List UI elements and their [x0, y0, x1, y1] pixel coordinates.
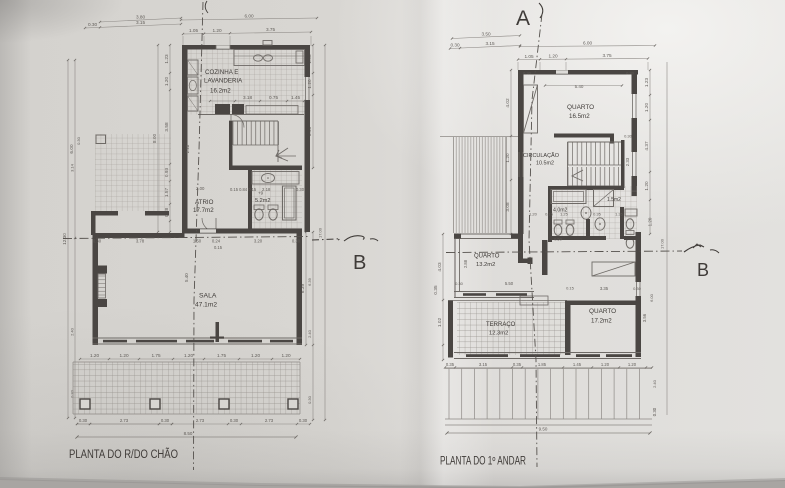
svg-text:4.02: 4.02	[505, 98, 510, 108]
svg-text:3.15: 3.15	[479, 362, 488, 367]
svg-text:CIRCULAÇÃO: CIRCULAÇÃO	[523, 152, 559, 159]
svg-text:0.15 0.84 0.15: 0.15 0.84 0.15	[230, 187, 257, 192]
svg-text:0.30: 0.30	[299, 418, 308, 423]
svg-text:6.00: 6.00	[244, 13, 254, 18]
svg-text:3.75: 3.75	[266, 27, 276, 32]
svg-text:2.73: 2.73	[196, 418, 205, 423]
svg-text:3.56: 3.56	[642, 313, 647, 322]
svg-text:1.05: 1.05	[524, 54, 534, 59]
svg-text:16.5m2: 16.5m2	[569, 113, 590, 120]
svg-text:17.00: 17.00	[318, 227, 323, 238]
svg-text:2.18: 2.18	[262, 187, 271, 192]
svg-text:3.35: 3.35	[600, 286, 609, 291]
svg-text:5.40: 5.40	[575, 84, 584, 89]
svg-text:0.30: 0.30	[93, 239, 102, 244]
svg-text:0.30: 0.30	[292, 239, 301, 244]
svg-text:17.2m2: 17.2m2	[591, 318, 612, 325]
svg-text:QUARTO: QUARTO	[567, 104, 594, 111]
svg-text:2.40: 2.40	[652, 379, 657, 388]
svg-text:SALA: SALA	[199, 293, 217, 300]
svg-text:3.15: 3.15	[136, 20, 146, 25]
svg-text:1.20: 1.20	[644, 103, 649, 113]
svg-text:4.37: 4.37	[644, 141, 649, 151]
svg-text:1.20: 1.20	[307, 79, 312, 89]
svg-text:47.1m2: 47.1m2	[195, 302, 217, 309]
svg-text:0.30: 0.30	[626, 71, 635, 76]
svg-text:0.75: 0.75	[269, 95, 279, 100]
svg-text:0.30: 0.30	[230, 418, 239, 423]
svg-text:4.03: 4.03	[437, 262, 442, 272]
svg-text:1.20: 1.20	[601, 362, 610, 367]
svg-text:2.33: 2.33	[625, 157, 630, 166]
svg-text:QUARTO: QUARTO	[589, 308, 616, 315]
svg-text:1.75: 1.75	[151, 353, 161, 358]
svg-text:6.39: 6.39	[307, 277, 312, 286]
svg-text:+9: +9	[258, 191, 264, 196]
svg-text:0.24: 0.24	[212, 239, 221, 244]
svg-text:3.80: 3.80	[136, 14, 146, 19]
svg-text:0.35: 0.35	[446, 362, 455, 367]
svg-text:2.73: 2.73	[265, 418, 274, 423]
svg-text:6.00: 6.00	[583, 40, 593, 45]
svg-text:0.50: 0.50	[554, 237, 563, 242]
svg-text:0.30: 0.30	[624, 134, 633, 139]
svg-text:3.15: 3.15	[485, 41, 495, 46]
svg-text:1.25: 1.25	[560, 212, 569, 217]
svg-text:17.00: 17.00	[660, 238, 665, 249]
svg-text:1.20: 1.20	[281, 353, 291, 358]
svg-text:13.2m2: 13.2m2	[476, 262, 495, 268]
svg-text:1.50: 1.50	[193, 239, 202, 244]
svg-text:10.5m2: 10.5m2	[536, 161, 554, 167]
svg-text:0.30: 0.30	[296, 187, 305, 192]
svg-text:6.00: 6.00	[649, 293, 654, 302]
svg-text:0.30: 0.30	[79, 418, 88, 423]
svg-text:2.73: 2.73	[120, 418, 129, 423]
svg-text:2.40: 2.40	[70, 327, 75, 336]
svg-text:0.15: 0.15	[545, 212, 554, 217]
svg-text:0.30: 0.30	[523, 71, 532, 76]
svg-text:0.30: 0.30	[633, 286, 642, 291]
svg-text:1.20: 1.20	[164, 77, 169, 87]
svg-text:0.35: 0.35	[433, 285, 438, 295]
svg-text:B: B	[353, 252, 366, 274]
svg-text:2.88: 2.88	[463, 259, 468, 268]
svg-text:1.05: 1.05	[189, 28, 199, 33]
svg-text:1.5m2: 1.5m2	[607, 197, 621, 203]
svg-text:1.45: 1.45	[573, 362, 582, 367]
svg-text:1.20: 1.20	[505, 153, 510, 163]
svg-text:16.2m2: 16.2m2	[210, 88, 231, 95]
svg-text:1.20: 1.20	[119, 353, 129, 358]
svg-text:3.08: 3.08	[505, 202, 510, 212]
svg-text:1.20: 1.20	[184, 353, 194, 358]
svg-text:PLANTA DO 1º ANDAR: PLANTA DO 1º ANDAR	[440, 456, 526, 468]
svg-text:2.20: 2.20	[185, 144, 190, 153]
svg-text:3.50: 3.50	[481, 31, 491, 36]
svg-text:A: A	[516, 7, 530, 30]
svg-text:5.50: 5.50	[505, 281, 514, 286]
svg-text:1.20: 1.20	[548, 54, 558, 59]
svg-text:0.35: 0.35	[513, 362, 522, 367]
svg-text:COZINHA E: COZINHA E	[205, 69, 238, 76]
svg-text:TERRAÇO: TERRAÇO	[486, 322, 516, 328]
svg-text:PLANTA DO R/DO CHÃO: PLANTA DO R/DO CHÃO	[69, 448, 178, 461]
svg-text:0.15: 0.15	[566, 286, 575, 291]
svg-text:0.30: 0.30	[76, 136, 81, 145]
svg-text:1.20: 1.20	[644, 181, 649, 191]
svg-text:1.20: 1.20	[212, 28, 222, 33]
svg-text:0.30: 0.30	[307, 395, 312, 404]
svg-text:3.20: 3.20	[254, 239, 263, 244]
svg-text:1.20: 1.20	[628, 362, 637, 367]
svg-text:5.40: 5.40	[184, 273, 189, 282]
svg-text:1.23: 1.23	[164, 54, 169, 64]
svg-text:3.75: 3.75	[602, 53, 612, 58]
svg-text:0.30: 0.30	[88, 22, 98, 27]
svg-text:6.00: 6.00	[69, 144, 74, 154]
svg-text:1.20: 1.20	[529, 212, 538, 217]
svg-text:1.02: 1.02	[437, 318, 442, 328]
svg-text:1.85: 1.85	[538, 362, 547, 367]
svg-text:3.58: 3.58	[164, 122, 169, 132]
svg-text:3.78: 3.78	[136, 239, 145, 244]
svg-text:1.20: 1.20	[90, 353, 100, 358]
svg-text:3.18: 3.18	[243, 95, 253, 100]
svg-text:1.35: 1.35	[615, 212, 624, 217]
svg-text:8.50: 8.50	[184, 431, 193, 436]
svg-text:17.7m2: 17.7m2	[193, 207, 214, 214]
svg-text:3.14: 3.14	[70, 163, 75, 172]
svg-text:LAVANDERIA: LAVANDERIA	[204, 78, 243, 85]
svg-text:1.45: 1.45	[291, 95, 301, 100]
svg-text:ATRIO: ATRIO	[195, 199, 214, 206]
svg-text:0.30: 0.30	[455, 281, 464, 286]
svg-text:1.20: 1.20	[648, 217, 653, 226]
svg-text:5.2m2: 5.2m2	[255, 198, 271, 204]
svg-text:0.30: 0.30	[652, 407, 657, 416]
svg-text:0.15: 0.15	[214, 245, 223, 250]
svg-text:1.20: 1.20	[251, 353, 261, 358]
svg-text:0.35: 0.35	[593, 212, 602, 217]
svg-text:QUARTO: QUARTO	[474, 254, 500, 260]
svg-text:2.40: 2.40	[307, 329, 312, 338]
svg-text:12.3m2: 12.3m2	[489, 331, 508, 337]
svg-text:9.50: 9.50	[539, 427, 548, 432]
svg-text:1.75: 1.75	[217, 353, 227, 358]
svg-text:1.23: 1.23	[644, 78, 649, 88]
svg-text:0.30: 0.30	[161, 418, 170, 423]
svg-text:B: B	[697, 260, 709, 280]
svg-text:0.30: 0.30	[450, 43, 460, 48]
